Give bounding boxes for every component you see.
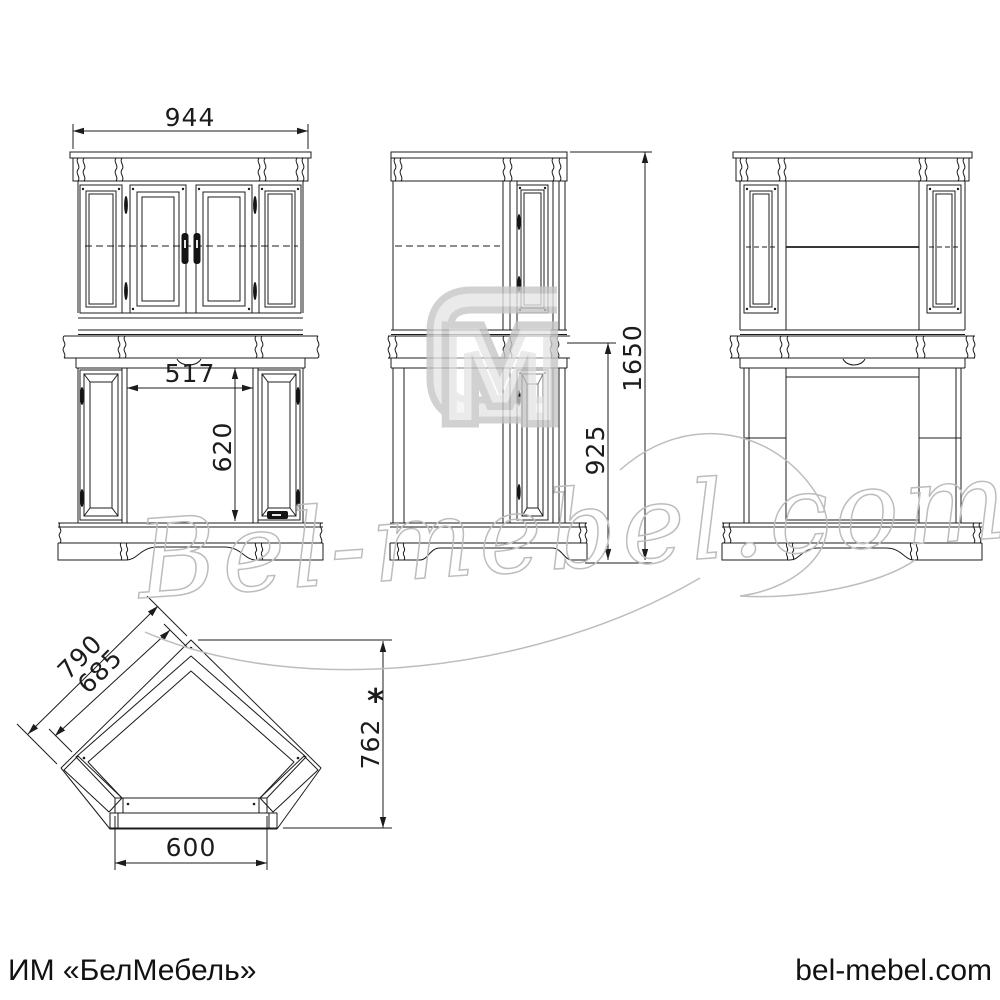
drawing-canvas: 944 [0, 0, 1000, 1000]
dim-620-label: 620 [208, 422, 237, 473]
blueprint-page: 944 [0, 0, 1000, 1000]
dim-517-label: 517 [165, 359, 216, 388]
dim-762-label: 762 [356, 719, 385, 770]
plan-view: 790 685 762 * 600 [17, 596, 392, 870]
pin-dots-front [82, 188, 299, 310]
dimension-front-width: 944 [73, 103, 308, 149]
logo-letter: M [438, 305, 562, 450]
dim-600-label: 600 [166, 833, 217, 862]
footer-website: bel-mebel.com [795, 954, 992, 987]
dimension-plan-inner-edge: 685 [49, 624, 187, 752]
watermark-text: Bel-mebel.com [131, 438, 1000, 624]
logo-watermark: M M [438, 300, 562, 450]
dim-1650-label: 1650 [618, 324, 647, 392]
door-handles [182, 233, 201, 264]
footer-company: ИМ «БелМебель» [8, 954, 256, 987]
dim-944-label: 944 [165, 103, 216, 132]
hinge-marks-upper [124, 196, 257, 300]
dimension-plan-front-width: 600 [115, 816, 267, 870]
dim-762-asterisk: * [367, 681, 384, 720]
script-watermark: Bel-mebel.com [131, 434, 1000, 670]
